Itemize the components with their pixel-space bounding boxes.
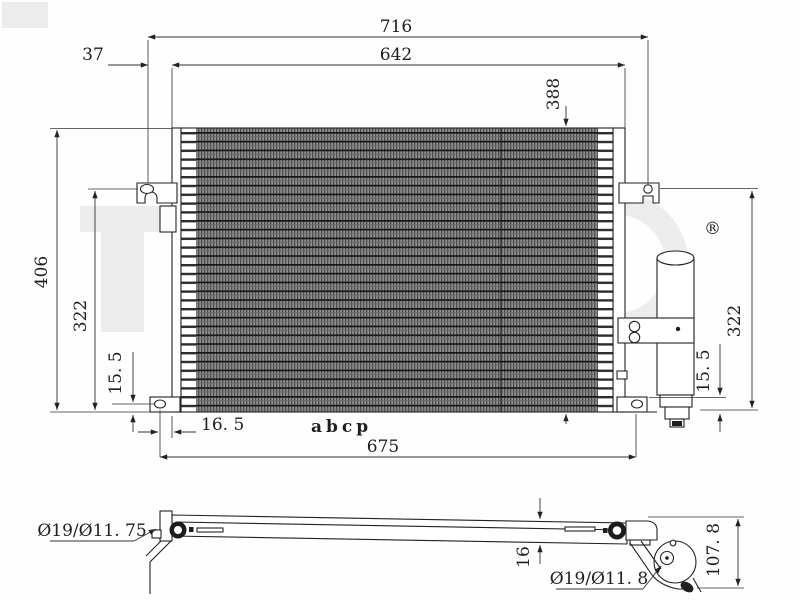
side-right-port	[608, 522, 626, 540]
side-end-plate	[626, 521, 657, 540]
technical-drawing-page: ®	[0, 0, 800, 600]
svg-text:Ø19/Ø11. 8: Ø19/Ø11. 8	[550, 569, 649, 589]
bracket-bottom-left	[150, 397, 180, 412]
dim-15-5-left: 15. 5	[106, 351, 154, 432]
scan-artifact	[2, 2, 48, 28]
svg-text:15. 5: 15. 5	[694, 349, 714, 392]
header-tab	[617, 371, 627, 379]
side-slot-right	[565, 527, 595, 531]
right-header-tank	[613, 128, 625, 412]
left-side-tab	[160, 206, 176, 232]
side-left-port	[170, 522, 187, 539]
condenser-core	[181, 128, 613, 412]
svg-text:37: 37	[82, 45, 104, 65]
svg-text:406: 406	[32, 256, 52, 288]
side-profile-bar	[172, 515, 627, 544]
side-drier-circle	[654, 540, 696, 583]
svg-text:15. 5: 15. 5	[106, 351, 126, 394]
port-hole-bottom	[629, 332, 639, 342]
watermark-letter-left	[80, 206, 170, 332]
svg-text:107. 8: 107. 8	[704, 523, 724, 577]
port-hole-top	[629, 321, 639, 331]
fitting-block	[618, 318, 694, 343]
svg-text:Ø19/Ø11. 75: Ø19/Ø11. 75	[37, 521, 146, 541]
svg-text:16. 5: 16. 5	[201, 415, 244, 435]
dim-16-5: 16. 5	[138, 415, 244, 438]
bracket-top-right	[619, 183, 659, 203]
front-view	[137, 128, 694, 427]
watermark-logo: abcp	[311, 417, 372, 437]
svg-text:322: 322	[725, 305, 745, 337]
condenser-drawing: ®	[0, 0, 800, 600]
bracket-hole	[632, 400, 643, 408]
svg-text:716: 716	[380, 17, 412, 37]
side-slot-left	[197, 528, 223, 532]
bracket-top-left	[137, 183, 177, 203]
bracket-bottom-right	[617, 397, 647, 412]
svg-text:642: 642	[380, 45, 412, 65]
watermark-registered-icon: ®	[704, 219, 721, 239]
dim-37: 37	[82, 45, 148, 65]
svg-text:675: 675	[367, 437, 399, 457]
bracket-hole	[141, 185, 154, 194]
dim-port-left: Ø19/Ø11. 75	[37, 521, 156, 541]
dim-port-right: Ø19/Ø11. 8	[550, 566, 661, 589]
svg-text:388: 388	[544, 78, 564, 110]
left-header-tank	[172, 128, 181, 412]
svg-text:16: 16	[514, 546, 534, 568]
svg-text:322: 322	[71, 300, 91, 332]
bracket-hole	[644, 185, 652, 193]
side-left-block	[160, 511, 172, 541]
bracket-hole	[155, 400, 166, 408]
